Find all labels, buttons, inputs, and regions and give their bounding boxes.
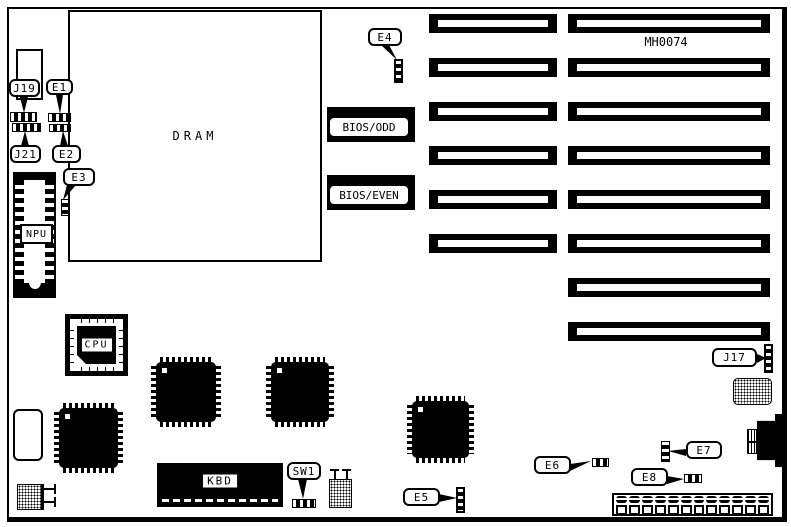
power-pin-oval xyxy=(655,496,666,503)
qfp-chip-2 xyxy=(266,357,334,427)
callout-e4: E4 xyxy=(368,28,402,46)
e7-jumper-block xyxy=(661,441,670,462)
expansion-slot xyxy=(568,322,770,341)
power-pin-square xyxy=(758,505,769,515)
e4-jumper-block xyxy=(394,59,403,83)
power-pin-square xyxy=(681,505,692,515)
cpu-socket: CPU xyxy=(65,314,128,376)
qfp-pin1-dot xyxy=(277,368,282,373)
kbd-label: KBD xyxy=(202,474,238,489)
sw1-switch-block xyxy=(292,499,316,508)
bios-odd-chip: BIOS/ODD xyxy=(327,107,415,142)
power-pin-oval xyxy=(642,496,653,503)
callout-e5: E5 xyxy=(403,488,440,506)
dram-label: DRAM xyxy=(173,129,218,143)
keyboard-din-connector xyxy=(757,414,786,467)
cpu-pin-ticks-right xyxy=(119,323,123,367)
kbd-socket-holes xyxy=(162,499,278,502)
callout-sw1: SW1 xyxy=(287,462,321,480)
power-pin-oval xyxy=(629,496,640,503)
expansion-slot xyxy=(429,146,557,165)
callout-e8: E8 xyxy=(631,468,668,486)
qfp-chip-3 xyxy=(54,403,123,473)
e3-jumper-block xyxy=(61,199,69,216)
cpu-pin-ticks-bottom xyxy=(74,367,119,371)
j17-jumper-block xyxy=(764,344,773,373)
power-pin-oval xyxy=(732,496,743,503)
power-pin-square xyxy=(732,505,743,515)
cpu-pin-ticks-top xyxy=(74,319,119,323)
e8-jumper-block xyxy=(684,474,702,483)
power-pin-square xyxy=(719,505,730,515)
power-pin-oval xyxy=(694,496,705,503)
npu-socket: NPU xyxy=(13,172,56,298)
bios-even-label: BIOS/EVEN xyxy=(329,185,409,205)
npu-socket-notch xyxy=(15,283,54,296)
power-pin-oval xyxy=(758,496,769,503)
power-pin-square xyxy=(706,505,717,515)
power-pin-square xyxy=(655,505,666,515)
power-pin-oval xyxy=(706,496,717,503)
power-pin-oval xyxy=(668,496,679,503)
board-id-text: MH0074 xyxy=(630,35,702,49)
expansion-slot-column-right xyxy=(568,14,770,366)
power-pin-square xyxy=(745,505,756,515)
callout-e2: E2 xyxy=(52,145,81,163)
callout-j19: J19 xyxy=(9,79,40,97)
bios-even-chip: BIOS/EVEN xyxy=(327,175,415,210)
expansion-slot xyxy=(568,14,770,33)
expansion-slot xyxy=(568,190,770,209)
din-pin-comb-lower xyxy=(747,442,757,454)
expansion-slot xyxy=(429,102,557,121)
power-pin-square xyxy=(616,505,627,515)
power-pin-oval xyxy=(681,496,692,503)
power-pin-oval xyxy=(719,496,730,503)
qfp-pin1-dot xyxy=(418,407,423,412)
din-pin-comb-upper xyxy=(747,429,757,442)
npu-label: NPU xyxy=(20,224,53,244)
e6-jumper-block xyxy=(592,458,609,467)
crystal xyxy=(329,479,352,508)
power-pin-square xyxy=(629,505,640,515)
motherboard-diagram: DRAM NPU CPU xyxy=(0,0,791,527)
expansion-slot xyxy=(429,14,557,33)
callout-e1: E1 xyxy=(46,79,73,95)
callout-j21: J21 xyxy=(10,145,41,163)
e1-jumper-block xyxy=(48,113,71,122)
j21-jumper-block xyxy=(12,123,41,132)
expansion-slot xyxy=(429,234,557,253)
expansion-slot xyxy=(429,190,557,209)
power-connector-oval-pins xyxy=(614,495,771,504)
callout-j17: J17 xyxy=(712,348,757,367)
power-pin-oval xyxy=(745,496,756,503)
e5-jumper-block xyxy=(456,487,465,513)
qfp-pin1-dot xyxy=(162,368,167,373)
expansion-slot xyxy=(568,278,770,297)
power-pin-square xyxy=(642,505,653,515)
qfp-pin1-dot xyxy=(65,414,70,419)
bios-odd-label: BIOS/ODD xyxy=(329,117,409,137)
power-pin-oval xyxy=(616,496,627,503)
power-pin-square xyxy=(694,505,705,515)
oscillator-outline xyxy=(13,409,43,461)
capacitor-right xyxy=(733,378,772,405)
callout-e6: E6 xyxy=(534,456,571,474)
power-pin-square xyxy=(668,505,679,515)
qfp-chip-4 xyxy=(407,396,474,463)
expansion-slot xyxy=(568,102,770,121)
qfp-chip-1 xyxy=(151,357,221,427)
dram-region: DRAM xyxy=(68,10,322,262)
power-connector-square-pins xyxy=(614,505,771,515)
expansion-slot xyxy=(568,146,770,165)
callout-e7: E7 xyxy=(686,441,722,459)
expansion-slot-column-left xyxy=(429,14,557,278)
power-connector xyxy=(612,493,773,516)
cpu-label: CPU xyxy=(81,339,111,352)
expansion-slot xyxy=(568,58,770,77)
kbd-controller: KBD xyxy=(157,463,283,507)
j19-jumper-block xyxy=(10,112,37,122)
callout-e3: E3 xyxy=(63,168,95,186)
capacitor-bottom-left xyxy=(17,484,44,510)
e2-jumper-block xyxy=(49,124,71,132)
expansion-slot xyxy=(568,234,770,253)
cpu-pin-ticks-left xyxy=(70,323,74,367)
expansion-slot xyxy=(429,58,557,77)
